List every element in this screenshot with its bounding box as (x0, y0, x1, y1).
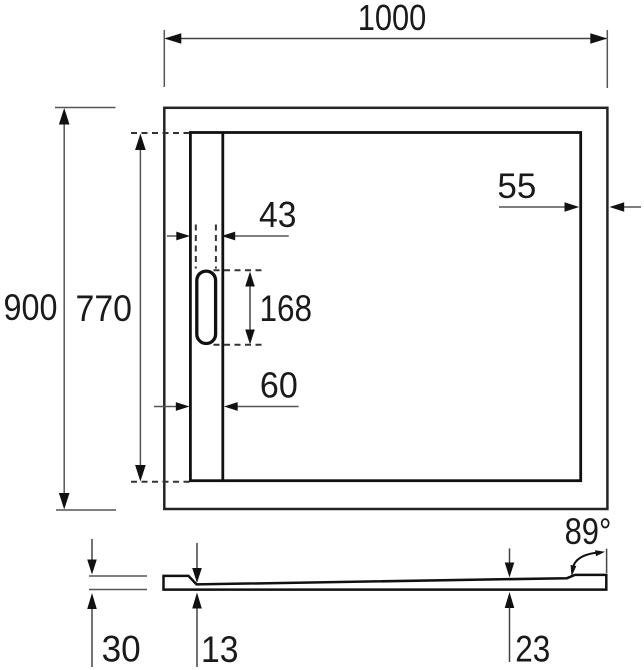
svg-text:770: 770 (76, 287, 133, 329)
svg-text:168: 168 (260, 288, 313, 329)
svg-text:55: 55 (497, 167, 536, 206)
svg-text:43: 43 (259, 194, 296, 235)
svg-text:1000: 1000 (358, 0, 427, 38)
svg-text:60: 60 (260, 365, 298, 406)
svg-text:13: 13 (201, 629, 239, 670)
svg-text:89°: 89° (565, 511, 612, 552)
svg-text:23: 23 (515, 629, 550, 670)
svg-text:30: 30 (102, 629, 141, 670)
svg-text:900: 900 (4, 286, 58, 328)
